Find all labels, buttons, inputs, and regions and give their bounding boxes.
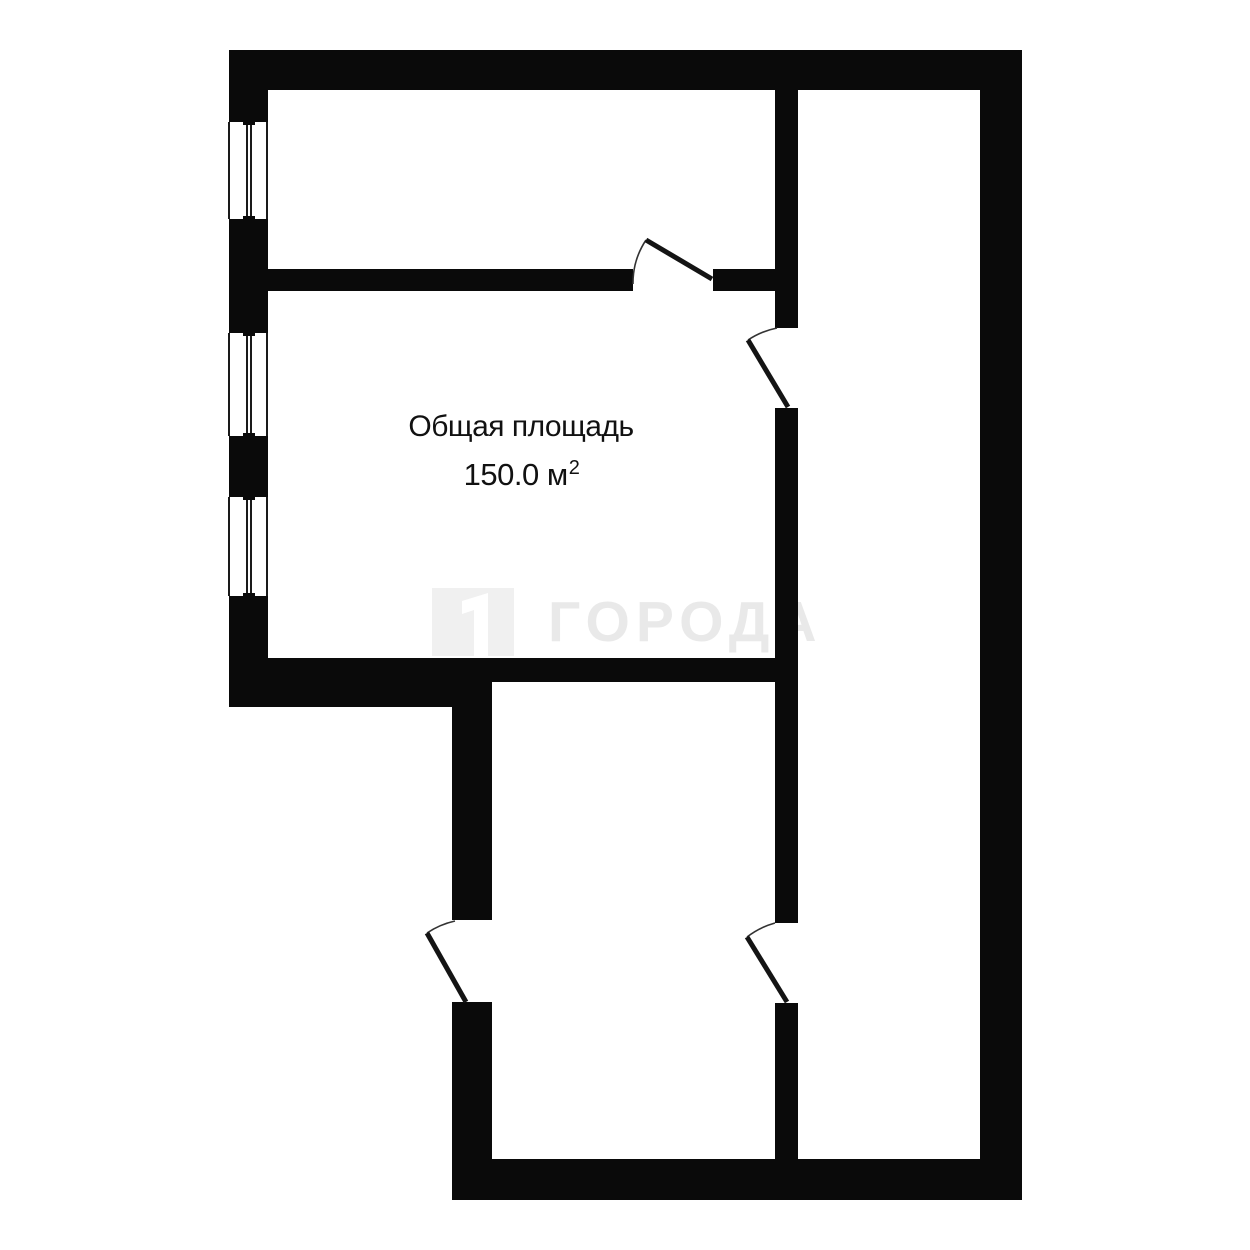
door-leaf-icon-3	[427, 933, 466, 1002]
door-swing-arc-icon-4	[747, 923, 775, 937]
door-swing-arc-icon-1	[633, 240, 646, 284]
door-swing-arc-icon-2	[748, 328, 777, 340]
area-value-superscript: 2	[569, 457, 580, 479]
door-swing-arc-icon-3	[427, 921, 455, 933]
area-label: Общая площадь	[321, 412, 721, 442]
door-leaf-icon-1	[646, 240, 712, 279]
floor-plan: ГОРОДА	[0, 0, 1250, 1250]
door-leaf-icon-2	[748, 340, 788, 407]
area-value-main: 150.0 м	[464, 457, 568, 492]
door-swings-layer	[0, 0, 1250, 1250]
door-leaf-icon-4	[747, 937, 787, 1002]
area-label-block: Общая площадь 150.0 м2	[321, 412, 721, 495]
area-value: 150.0 м2	[321, 459, 721, 495]
